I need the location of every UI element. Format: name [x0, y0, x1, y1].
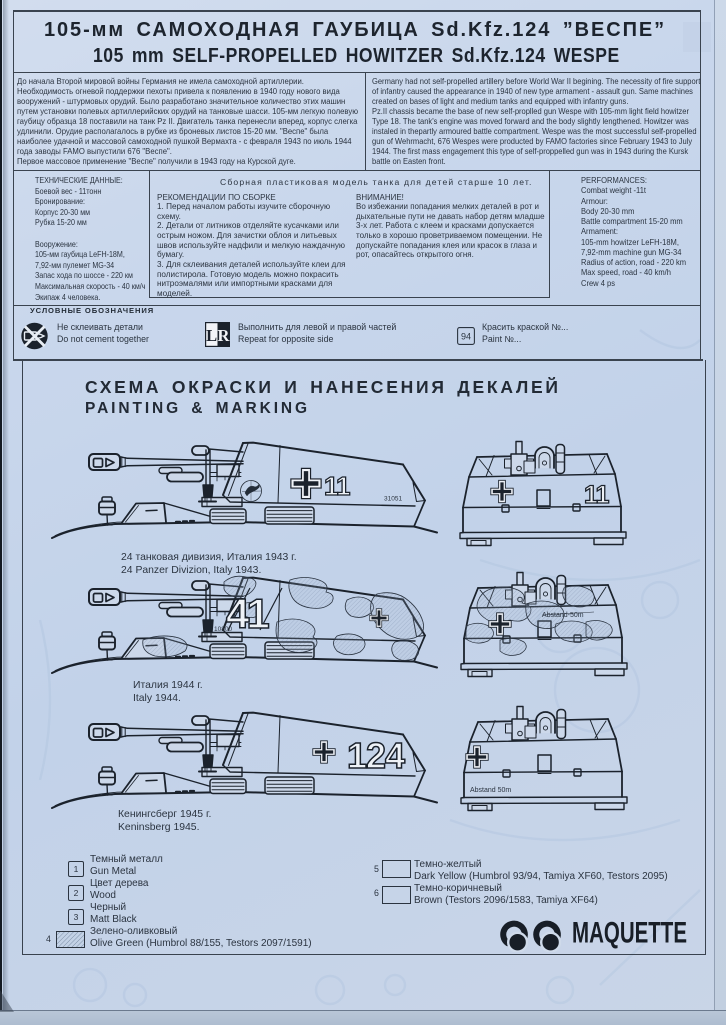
svg-text:31051: 31051 [384, 496, 402, 503]
svg-text:Abstand 50m: Abstand 50m [470, 787, 511, 794]
svg-text:MAQUETTE: MAQUETTE [572, 916, 687, 949]
svg-text:11: 11 [324, 471, 350, 501]
svg-text:10800: 10800 [214, 626, 232, 633]
svg-text:11: 11 [584, 481, 610, 509]
svg-text:Abstand-50m: Abstand-50m [542, 612, 584, 619]
svg-text:124: 124 [347, 735, 405, 776]
svg-text:41: 41 [226, 590, 269, 637]
